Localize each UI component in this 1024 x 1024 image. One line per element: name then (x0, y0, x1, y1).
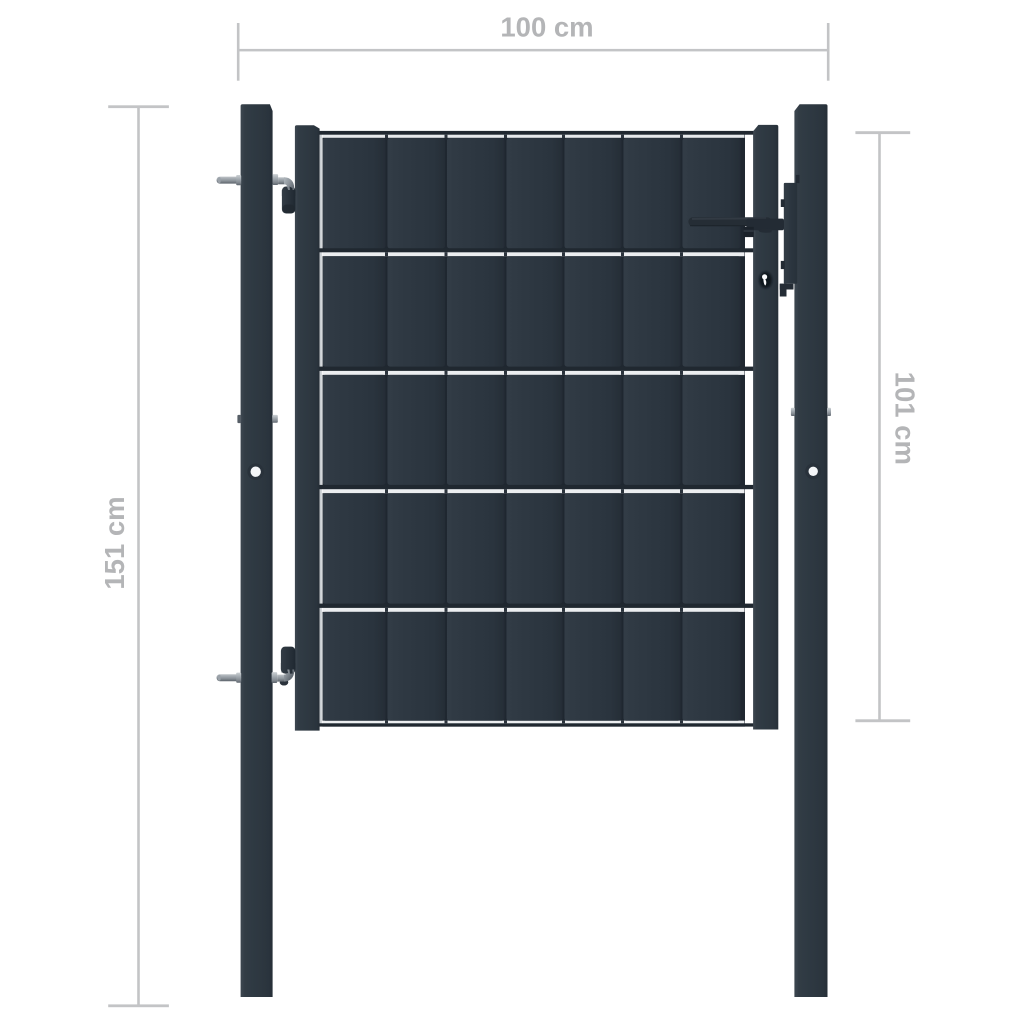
svg-text:100 cm: 100 cm (500, 12, 593, 43)
svg-text:101 cm: 101 cm (889, 372, 920, 465)
svg-text:151 cm: 151 cm (99, 496, 130, 589)
